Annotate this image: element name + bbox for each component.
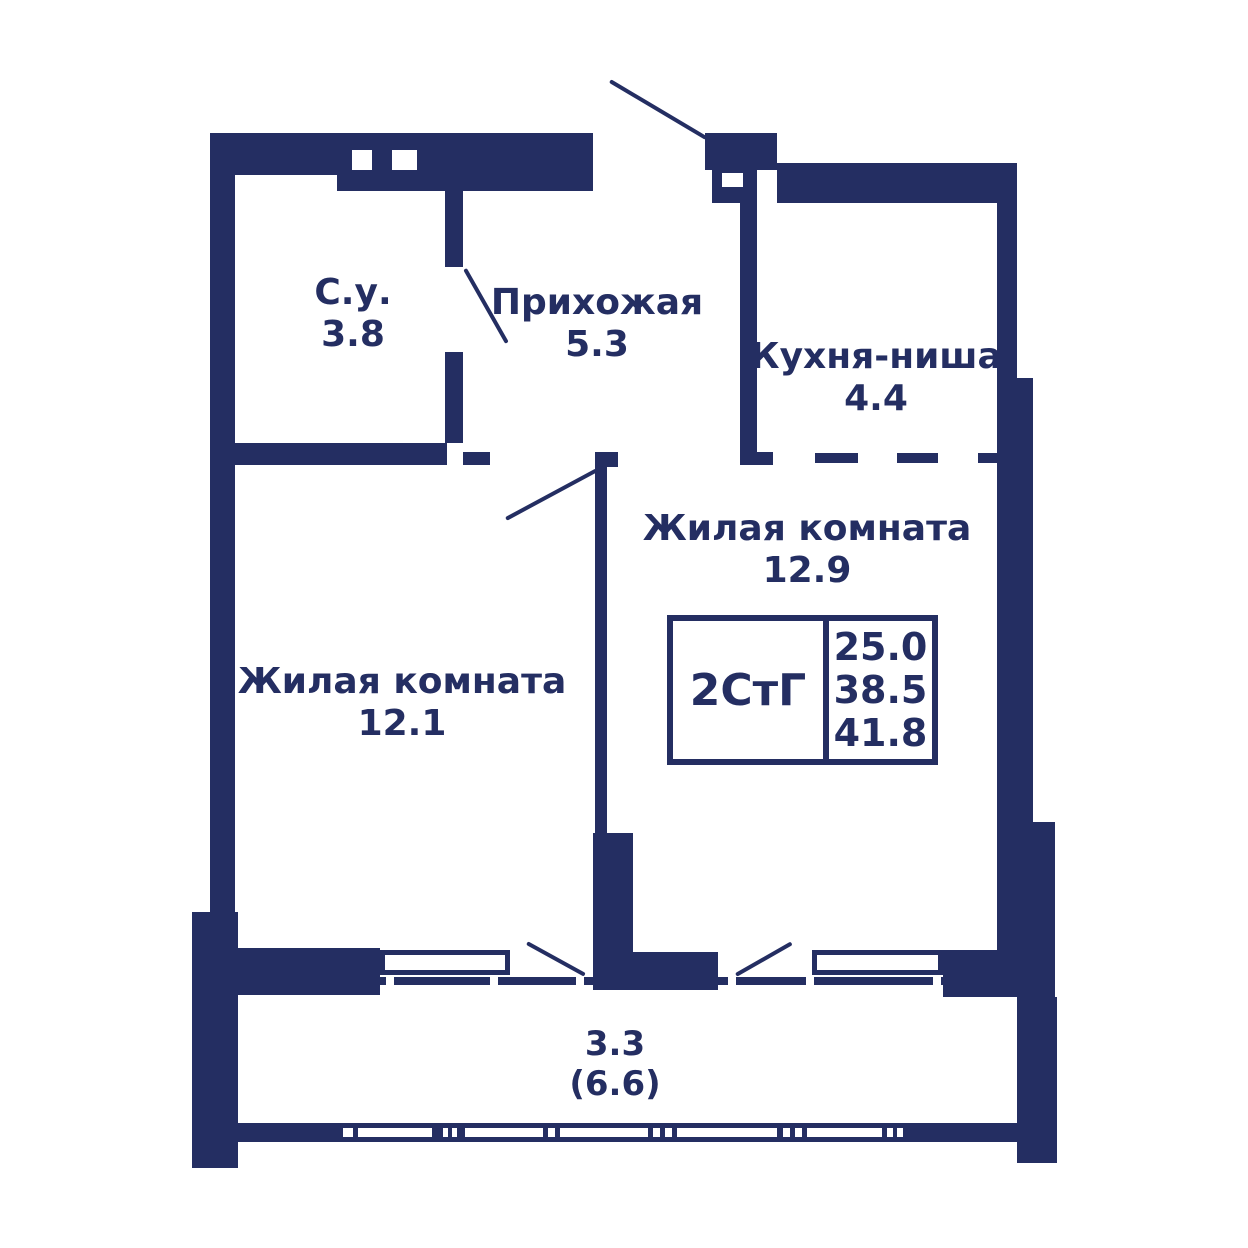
room-area: 12.9 <box>643 550 972 592</box>
glazing-mullion <box>457 1128 465 1137</box>
sill-gap <box>933 977 941 985</box>
door-swing-entry <box>609 79 707 140</box>
wall-kitchen-west-foot <box>757 452 773 465</box>
balcony-glazing <box>343 1128 903 1137</box>
unit-area-living: 25.0 <box>834 626 928 669</box>
room-label-living2: Жилая комната 12.1 <box>238 661 567 745</box>
window-living2 <box>380 950 510 975</box>
unit-info-box: 2СтГ 25.0 38.5 41.8 <box>667 615 938 765</box>
sill-gap <box>728 977 736 985</box>
unit-area-total: 41.8 <box>834 712 928 755</box>
window-sill-living1 <box>718 977 943 985</box>
sill-gap <box>490 977 498 985</box>
wall-kitchen-north <box>777 163 1017 203</box>
vent-shaft-block <box>337 175 593 191</box>
wall-west <box>210 175 235 948</box>
room-label-bathroom: С.у. 3.8 <box>314 272 391 356</box>
room-label-kitchen: Кухня-ниша 4.4 <box>750 336 1002 420</box>
block-corner-southeast <box>943 950 1055 997</box>
room-name: С.у. <box>314 272 391 314</box>
vent-shaft-window-1 <box>352 150 372 170</box>
sill-gap <box>386 977 394 985</box>
glazing-mullion <box>353 1128 358 1137</box>
balcony-area-full: (6.6) <box>569 1064 660 1104</box>
door-swing-balcony-living1 <box>735 942 793 977</box>
room-label-hallway: Прихожая 5.3 <box>491 282 703 366</box>
wall-balcony-east <box>1017 997 1057 1163</box>
unit-area-main: 38.5 <box>834 669 928 712</box>
glazing-mullion <box>555 1128 560 1137</box>
wall-east-lower <box>997 822 1055 950</box>
glazing-mullion <box>543 1128 548 1137</box>
glazing-mullion <box>432 1128 443 1137</box>
room-name: Жилая комната <box>643 508 972 550</box>
room-name: Жилая комната <box>238 661 567 703</box>
wall-bathroom-south <box>210 443 447 465</box>
room-area: 4.4 <box>750 378 1002 420</box>
wall-divider <box>595 467 607 833</box>
balcony-label: 3.3 (6.6) <box>569 1024 660 1104</box>
glazing-mullion <box>790 1128 795 1137</box>
room-label-living1: Жилая комната 12.9 <box>643 508 972 592</box>
kitchen-boundary-dash-2 <box>897 453 938 463</box>
door-swing-living2 <box>505 468 598 520</box>
balcony-area-reduced: 3.3 <box>569 1024 660 1064</box>
glazing-mullion <box>448 1128 452 1137</box>
unit-type-cell: 2СтГ <box>673 621 829 759</box>
unit-areas-cell: 25.0 38.5 41.8 <box>829 621 932 759</box>
floor-plan: С.у. 3.8 Прихожая 5.3 Кухня-ниша 4.4 Жил… <box>0 0 1248 1248</box>
unit-type-label: 2СтГ <box>690 665 806 716</box>
kitchen-boundary-dash-3 <box>978 453 998 463</box>
block-center-south <box>593 952 718 990</box>
divider-column <box>593 833 633 952</box>
wall-bathroom-east-lower <box>445 352 463 443</box>
glazing-mullion <box>660 1128 665 1137</box>
glazing-mullion <box>648 1128 653 1137</box>
room-name: Прихожая <box>491 282 703 324</box>
glazing-mullion <box>893 1128 897 1137</box>
window-living1 <box>812 950 943 975</box>
glazing-mullion <box>882 1128 887 1137</box>
entry-pier-notch <box>722 173 743 187</box>
wall-south-west-segment <box>233 948 380 995</box>
entry-pier-upper <box>705 133 777 170</box>
vent-shaft-window-2 <box>392 150 417 170</box>
kitchen-boundary-dash-1 <box>815 453 858 463</box>
door-swing-balcony-living2 <box>526 941 586 976</box>
sill-gap <box>806 977 814 985</box>
wall-east-mid <box>997 378 1033 822</box>
room-name: Кухня-ниша <box>750 336 1002 378</box>
room-area: 3.8 <box>314 314 391 356</box>
room-area: 5.3 <box>491 324 703 366</box>
glazing-mullion <box>672 1128 677 1137</box>
wall-bathroom-east-upper <box>445 175 463 267</box>
glazing-mullion <box>802 1128 807 1137</box>
pier-west-balcony <box>192 912 238 1168</box>
sill-gap <box>576 977 584 985</box>
divider-cap <box>595 452 618 467</box>
glazing-mullion <box>777 1128 783 1137</box>
wall-kitchen-west <box>740 203 757 465</box>
jamb-bathroom-door <box>463 452 490 465</box>
room-area: 12.1 <box>238 703 567 745</box>
window-sill-living2 <box>380 977 593 985</box>
